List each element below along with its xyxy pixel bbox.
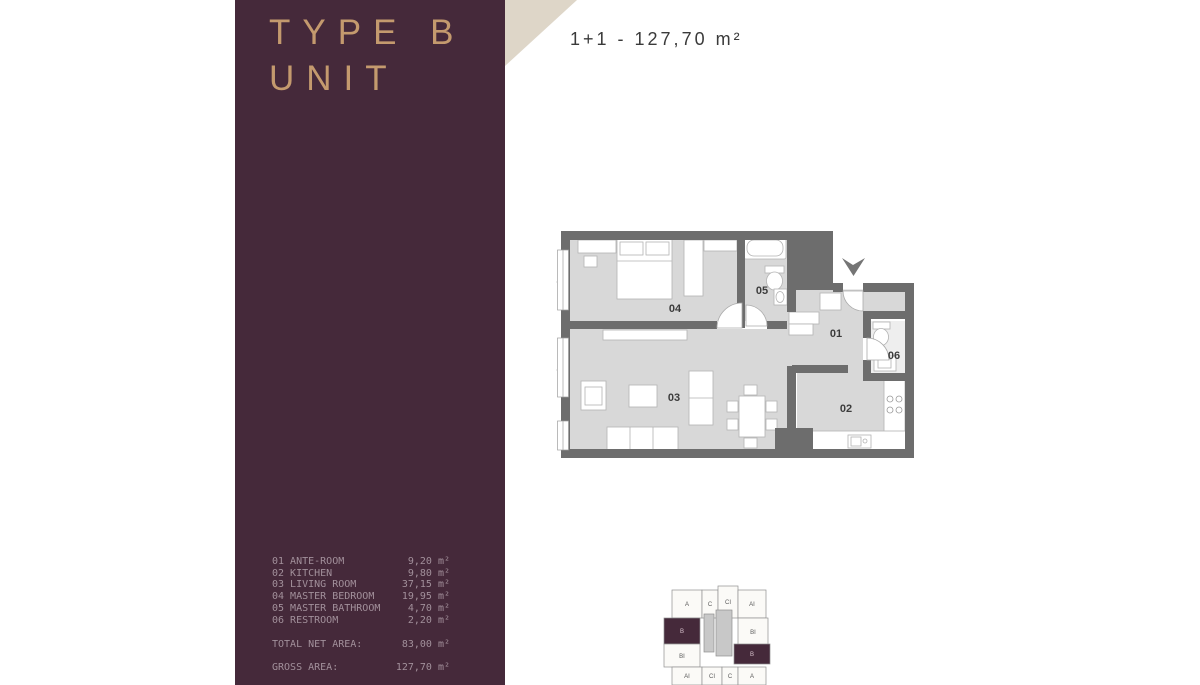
- dining-table: [739, 396, 765, 437]
- building-core: [704, 614, 714, 652]
- toilet: [767, 272, 783, 290]
- closet-shelf: [704, 240, 737, 251]
- room-area: 19,95 m²: [402, 591, 450, 603]
- unit-label: C: [708, 602, 713, 608]
- room-name: MASTER BEDROOM: [290, 591, 402, 603]
- room-list-item: 03 LIVING ROOM 37,15 m²: [272, 579, 450, 591]
- room-number: 02: [272, 568, 284, 580]
- chair: [727, 401, 738, 412]
- shoe-closet: [820, 293, 841, 310]
- room-list-item: 06 RESTROOM 2,20 m²: [272, 615, 450, 627]
- sofa-three-seat: [607, 427, 678, 451]
- unit-label: CI: [725, 600, 731, 606]
- room-number: 03: [272, 579, 284, 591]
- page-title: TYPE B UNIT: [269, 10, 465, 102]
- chair: [727, 419, 738, 430]
- unit-label: AI: [749, 602, 755, 608]
- room-area: 9,80 m²: [408, 568, 450, 580]
- unit-label: CI: [709, 674, 715, 680]
- gross-area-row: GROSS AREA: 127,70 m²: [272, 662, 450, 674]
- room-label-05: 05: [756, 285, 768, 297]
- key-plan: A C CI AI B BI BI B AI CI C A: [658, 584, 772, 685]
- chair: [766, 401, 777, 412]
- room-name: MASTER BATHROOM: [290, 603, 408, 615]
- closet: [789, 312, 819, 324]
- room-label-02: 02: [840, 403, 852, 415]
- wardrobe: [684, 240, 703, 296]
- room-area: 2,20 m²: [408, 615, 450, 627]
- gross-area-label: GROSS AREA:: [272, 662, 396, 674]
- floor-plan: 01 02 03 04 05 06: [556, 228, 920, 466]
- room-list-item: 04 MASTER BEDROOM 19,95 m²: [272, 591, 450, 603]
- room-area: 37,15 m²: [402, 579, 450, 591]
- total-net-area-row: TOTAL NET AREA: 83,00 m²: [272, 639, 450, 651]
- corner-decoration: [505, 0, 577, 66]
- room-name: KITCHEN: [290, 568, 408, 580]
- room-list: 01 ANTE-ROOM 9,20 m² 02 KITCHEN 9,80 m² …: [272, 556, 450, 674]
- room-list-item: 05 MASTER BATHROOM 4,70 m²: [272, 603, 450, 615]
- room-name: RESTROOM: [290, 615, 408, 627]
- unit-label: BI: [679, 654, 685, 660]
- room-name: LIVING ROOM: [290, 579, 402, 591]
- dresser: [578, 240, 616, 253]
- unit-label: C: [728, 674, 733, 680]
- nightstand: [584, 256, 597, 267]
- room-name: ANTE-ROOM: [290, 556, 408, 568]
- coffee-table: [629, 385, 657, 407]
- total-net-area-label: TOTAL NET AREA:: [272, 639, 402, 651]
- unit-label: AI: [684, 674, 690, 680]
- room-number: 06: [272, 615, 284, 627]
- title-line-1: TYPE B: [269, 10, 465, 56]
- building-core: [716, 610, 732, 656]
- room-number: 01: [272, 556, 284, 568]
- room-number: 04: [272, 591, 284, 603]
- unit-label: A: [750, 674, 754, 680]
- pillow: [620, 242, 643, 255]
- unit-label-highlighted: B: [680, 629, 684, 635]
- chair: [744, 385, 757, 395]
- page: TYPE B UNIT 01 ANTE-ROOM 9,20 m² 02 KITC…: [0, 0, 1200, 685]
- title-line-2: UNIT: [269, 56, 465, 102]
- chair: [744, 438, 757, 448]
- toilet-tank: [873, 322, 890, 329]
- room-number: 05: [272, 603, 284, 615]
- gross-area-value: 127,70 m²: [396, 662, 450, 674]
- unit-label-highlighted: B: [750, 652, 754, 658]
- room-list-item: 02 KITCHEN 9,80 m²: [272, 568, 450, 580]
- unit-label: A: [685, 602, 689, 608]
- side-panel: TYPE B UNIT 01 ANTE-ROOM 9,20 m² 02 KITC…: [235, 0, 505, 685]
- room-label-04: 04: [669, 303, 682, 315]
- entrance-arrow-icon: [842, 258, 865, 276]
- total-net-area-value: 83,00 m²: [402, 639, 450, 651]
- room-label-03: 03: [668, 392, 680, 404]
- room-label-01: 01: [830, 328, 842, 340]
- closet: [789, 324, 813, 335]
- unit-spec-header: 1+1 - 127,70 m²: [570, 29, 743, 50]
- unit-label: BI: [750, 630, 756, 636]
- room-list-item: 01 ANTE-ROOM 9,20 m²: [272, 556, 450, 568]
- tv-console: [603, 330, 687, 340]
- room-area: 4,70 m²: [408, 603, 450, 615]
- room-label-06: 06: [888, 350, 900, 362]
- pillow: [646, 242, 669, 255]
- room-area: 9,20 m²: [408, 556, 450, 568]
